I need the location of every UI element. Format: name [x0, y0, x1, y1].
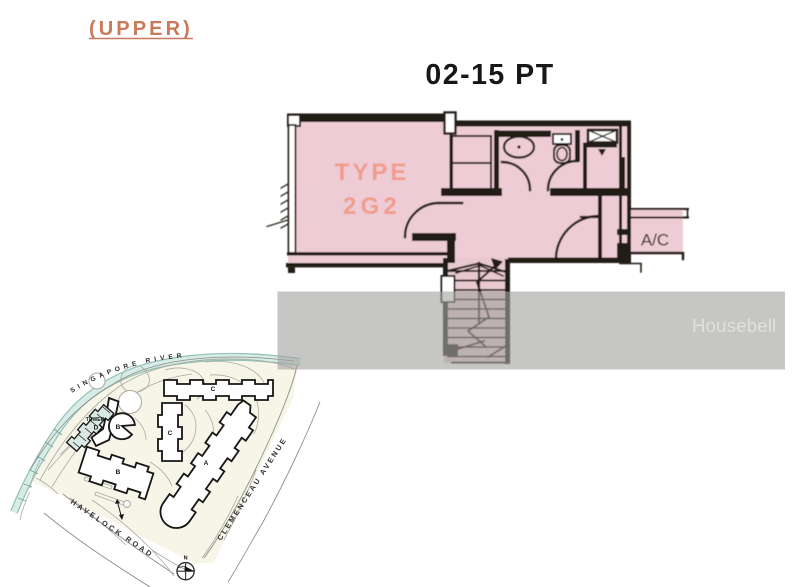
- svg-text:B: B: [116, 424, 121, 431]
- svg-text:A/C: A/C: [641, 231, 669, 250]
- svg-text:D: D: [94, 425, 99, 432]
- svg-text:B: B: [116, 469, 121, 476]
- svg-text:C: C: [211, 386, 216, 393]
- svg-text:2G2: 2G2: [343, 193, 401, 220]
- svg-text:N: N: [184, 556, 188, 562]
- svg-text:(UPPER): (UPPER): [89, 18, 193, 40]
- svg-text:A: A: [204, 460, 209, 467]
- svg-text:TYPE: TYPE: [335, 159, 410, 186]
- svg-text:02-15 PT: 02-15 PT: [425, 59, 554, 91]
- svg-text:C: C: [168, 430, 173, 437]
- svg-text:Housebell: Housebell: [692, 315, 777, 336]
- svg-text:TOWER: TOWER: [86, 417, 105, 423]
